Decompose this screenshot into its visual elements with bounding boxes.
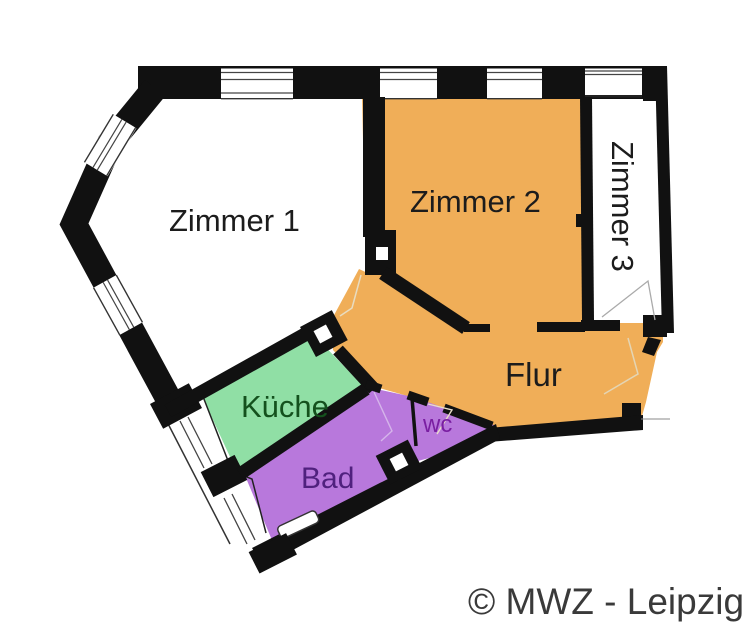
svg-text:wc: wc (422, 411, 452, 438)
svg-text:© MWZ - Leipzig: © MWZ - Leipzig (468, 581, 744, 622)
svg-text:Zimmer 2: Zimmer 2 (410, 184, 541, 219)
svg-text:Zimmer 1: Zimmer 1 (169, 203, 300, 238)
svg-text:Küche: Küche (241, 389, 329, 424)
svg-text:Zimmer 3: Zimmer 3 (605, 141, 640, 272)
svg-text:Bad: Bad (301, 462, 354, 495)
svg-text:Flur: Flur (505, 356, 562, 393)
